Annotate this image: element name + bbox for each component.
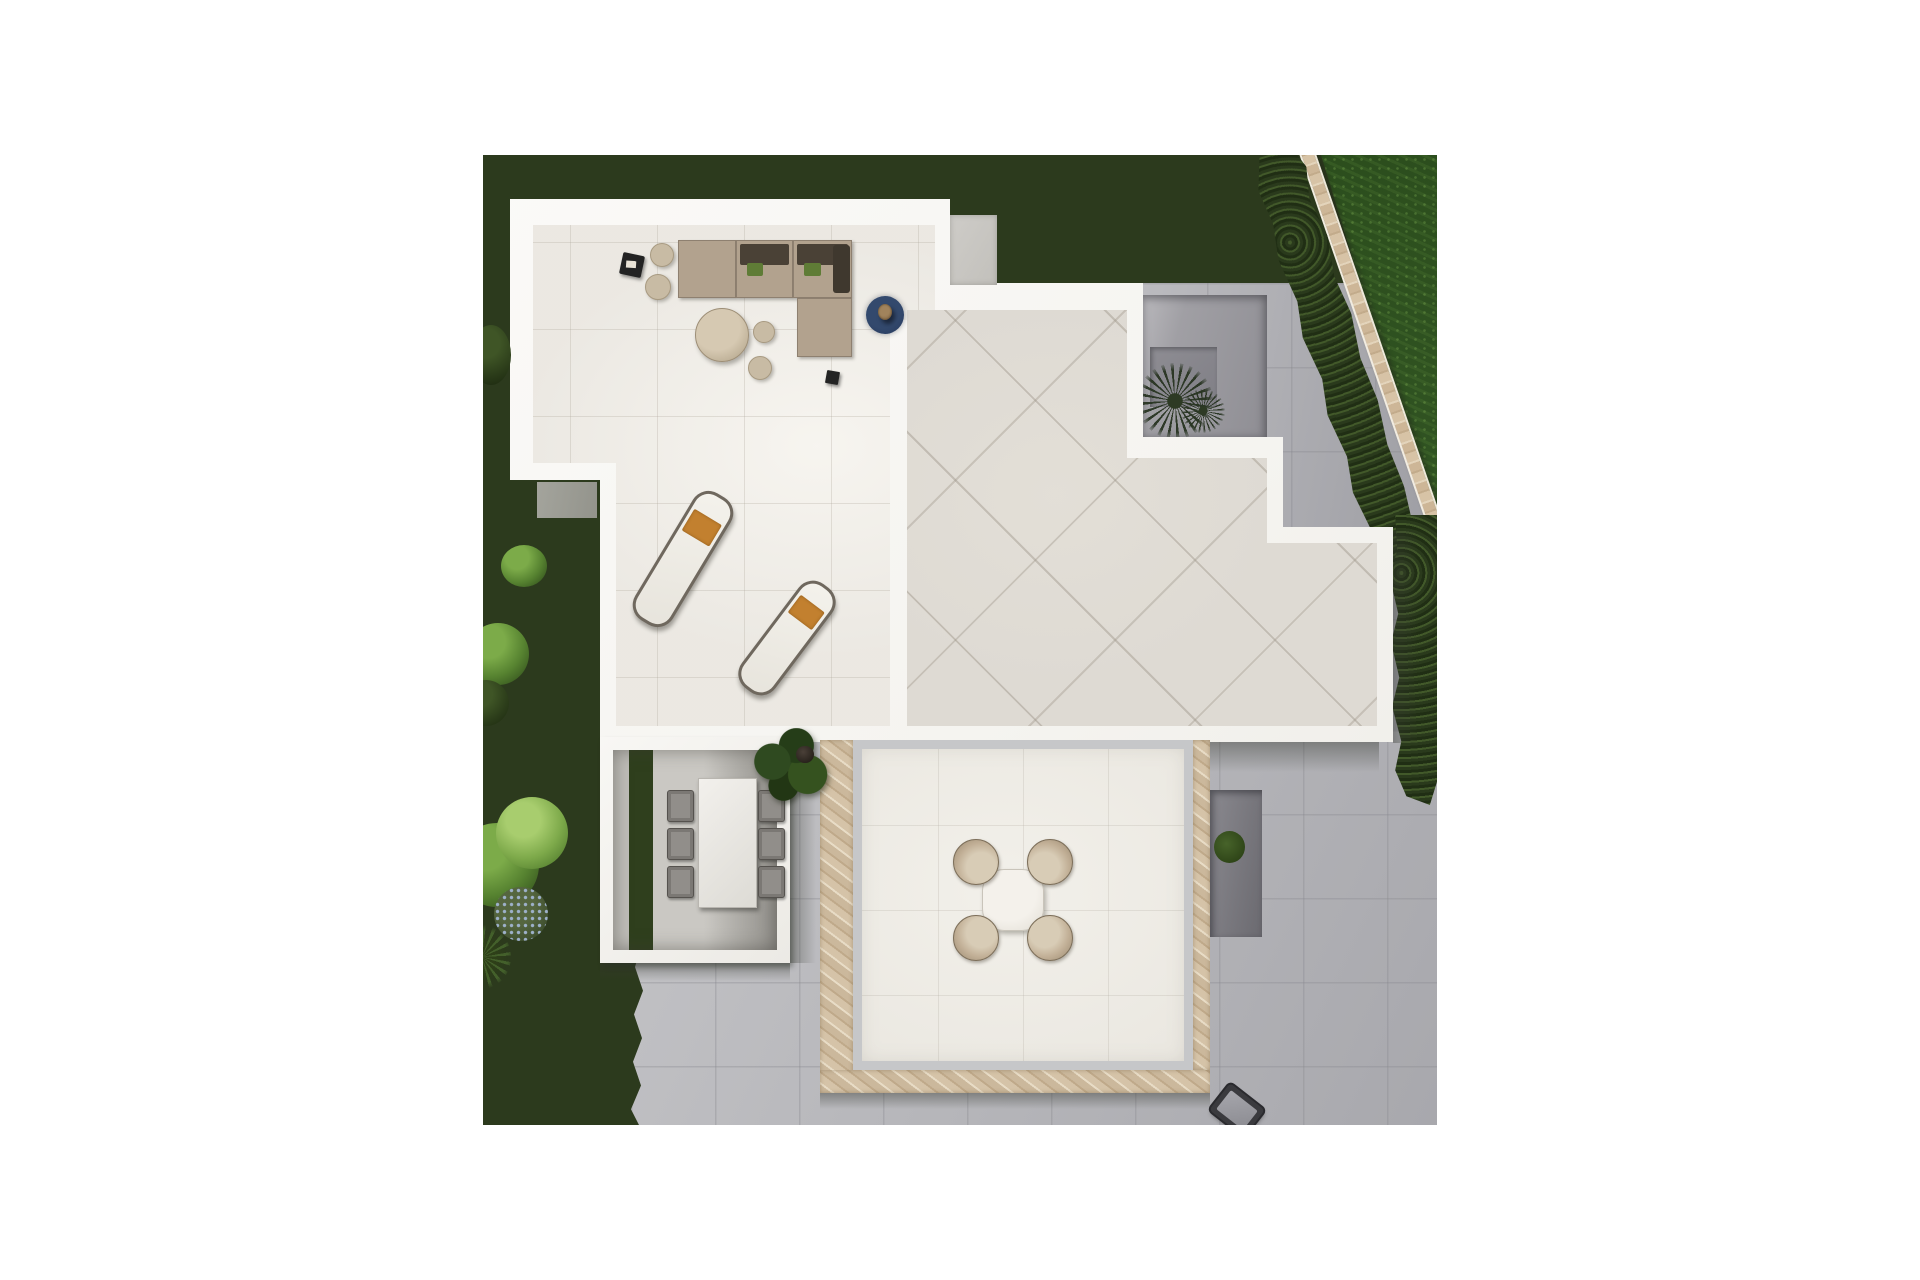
dining-chair-l2 [667,828,694,860]
shadow-stone-bottom [820,1093,1210,1109]
green-pillow [804,263,821,275]
lightwell [1210,790,1262,937]
sofa-corner [793,240,852,298]
bush-top [483,325,511,385]
sofa-cushion [740,244,788,264]
sofa-chaise [678,240,736,298]
green-pillow [747,263,764,275]
shadow-roof-right [1393,531,1419,743]
pouf-lower [645,274,671,300]
potted-plant [750,728,830,808]
shadow-pergola-bottom [600,963,790,981]
patio-chair-nw [953,839,999,885]
black-cube-table [825,370,840,385]
bush-light-speckled [496,797,568,869]
page-background: { "scene": { "description": "Top-down 3D… [0,0,1920,1280]
bush-shadowed [483,680,509,726]
pouf-small-a [753,321,775,343]
sofa-ottoman [797,298,852,357]
sofa-middle [736,240,793,298]
patio-chair-se [1027,915,1073,961]
stone-band-right [1193,740,1210,1070]
dining-chair-r3 [758,866,785,898]
dark-corner-pillow [833,245,850,292]
patio-chair-ne [1027,839,1073,885]
sunken-courtyard [1143,295,1267,437]
dining-chair-l1 [667,790,694,822]
pouf-small-b [748,356,772,380]
tray-table [619,252,645,278]
dining-chair-r2 [758,828,785,860]
roof-step-gray [950,215,997,285]
pouf-top [650,243,674,267]
tree-round [483,623,529,685]
bush-mid [501,545,547,587]
dining-chair-l3 [667,866,694,898]
notch-floor-gray [537,482,597,518]
architectural-render [483,155,1437,1125]
coffee-table [695,308,749,362]
stone-band-bottom [820,1070,1210,1093]
flower-cluster-blue [494,887,548,941]
palm-small [1181,389,1225,433]
wood-lamp [878,304,892,320]
dining-table [698,778,757,908]
patio-chair-sw [953,915,999,961]
